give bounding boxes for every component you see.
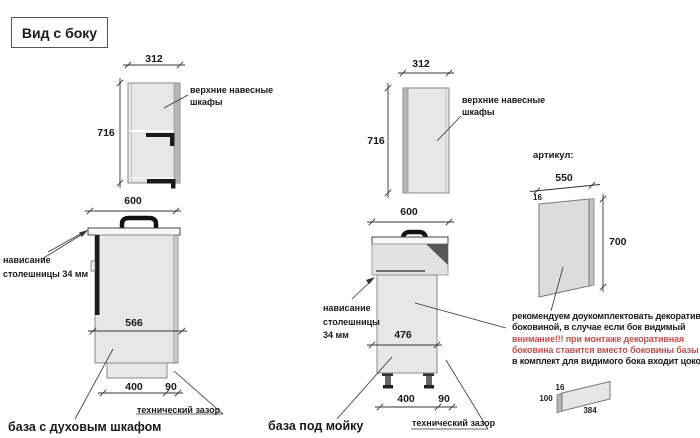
heading-article: артикул: — [533, 150, 574, 161]
adjustable-leg — [423, 374, 434, 389]
dim-plinth-height: 100 — [539, 394, 552, 403]
dim-left-base-plinth: 400 — [125, 381, 143, 393]
label-middle-upper-cabinets: верхние навесные шкафы — [462, 94, 545, 118]
note-line-1: рекомендуем доукомплектовать декоративно… — [512, 311, 700, 321]
plinth-base — [107, 363, 167, 378]
dim-middle-base-plinth: 400 — [397, 393, 415, 405]
label-middle-technical-gap: технический зазор — [412, 417, 495, 429]
decorative-side-panel-shape — [539, 199, 594, 298]
caption-oven-base: база с духовым шкафом — [8, 420, 161, 434]
label-left-overhang: нависание столешницы 34 мм — [3, 254, 88, 281]
middle-base-cabinet-shape — [372, 232, 448, 389]
dim-middle-upper-width: 312 — [412, 58, 430, 70]
note-line-3-warning: внимание!!! при монтаже декоративная — [512, 334, 684, 344]
dim-plinth-thickness: 16 — [556, 383, 565, 392]
dim-panel-thickness: 16 — [533, 193, 542, 202]
label-middle-overhang: нависание столешницы 34 мм — [323, 302, 380, 343]
dim-middle-base-gap: 90 — [438, 393, 450, 405]
dim-panel-width: 550 — [555, 172, 573, 184]
dim-middle-base-width: 600 — [400, 206, 418, 218]
left-base-cabinet-shape — [88, 218, 180, 378]
note-line-5: в комплект для видимого бока входит цоко… — [512, 356, 700, 366]
dim-middle-upper-height: 716 — [367, 135, 385, 147]
page-title: Вид с боку — [11, 17, 108, 48]
adjustable-leg — [382, 374, 393, 389]
caption-sink-base: база под мойку — [268, 419, 363, 433]
dim-plinth-length: 384 — [583, 406, 596, 415]
dim-left-upper-width: 312 — [145, 53, 163, 65]
left-upper-cabinet-shape — [128, 83, 180, 189]
oven-door-edge — [95, 235, 100, 315]
label-left-technical-gap: технический зазор — [137, 404, 220, 416]
middle-upper-cabinet-shape — [403, 88, 449, 193]
drawing-lines — [0, 0, 700, 438]
dim-panel-height: 700 — [609, 236, 627, 248]
dim-left-base-inner: 566 — [125, 317, 143, 329]
dim-left-upper-height: 716 — [97, 127, 115, 139]
label-left-upper-cabinets: верхние навесные шкафы — [190, 84, 273, 108]
dim-left-base-width: 600 — [124, 195, 142, 207]
dim-middle-base-inner: 476 — [394, 329, 412, 341]
side-view-drawing: Вид с боку 312 716 верхние навесные шкаф… — [0, 0, 700, 438]
note-line-4-warning: боковина ставится вместо боковины базы л… — [512, 345, 700, 355]
note-line-2: боковиной, в случае если бок видимый — [512, 322, 685, 332]
oven-handle — [122, 218, 156, 228]
dim-left-base-gap: 90 — [165, 381, 177, 393]
